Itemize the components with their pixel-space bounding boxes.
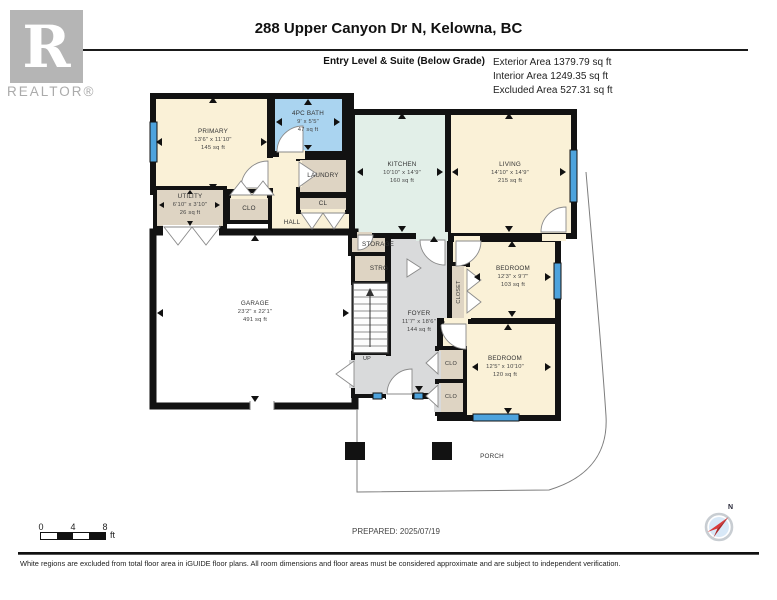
scale-bar: 0 4 8 bbox=[40, 532, 106, 540]
room-label-porch: PORCH bbox=[480, 453, 504, 461]
page-title: 288 Upper Canyon Dr N, Kelowna, BC bbox=[0, 20, 777, 37]
window bbox=[554, 263, 561, 299]
room-label-bedroom1: BEDROOM12'3" x 9'7"103 sq ft bbox=[496, 265, 530, 289]
footer-rule bbox=[18, 552, 759, 555]
room-label-living: LIVING14'10" x 14'9"215 sq ft bbox=[491, 161, 529, 185]
header-rule bbox=[28, 49, 748, 51]
scale-segment bbox=[57, 533, 73, 539]
prepared-date: PREPARED: 2025/07/19 bbox=[352, 527, 440, 536]
window bbox=[570, 150, 577, 202]
staircase bbox=[353, 283, 388, 353]
entry-sidelight bbox=[414, 393, 423, 399]
window bbox=[150, 122, 157, 162]
scale-tick-8: 8 bbox=[102, 522, 107, 532]
room-label-garage: GARAGE23'2" x 22'1"491 sq ft bbox=[238, 300, 272, 324]
scale-segment bbox=[89, 533, 105, 539]
room-label-hall: HALL bbox=[284, 219, 301, 227]
interior-area: Interior Area 1249.35 sq ft bbox=[493, 70, 613, 84]
scale-segment bbox=[73, 533, 89, 539]
scale-tick-0: 0 bbox=[38, 522, 43, 532]
level-label: Entry Level & Suite (Below Grade) bbox=[250, 56, 485, 67]
post bbox=[345, 442, 365, 460]
scale-segment bbox=[41, 533, 57, 539]
room-label-laundry: LAUNDRY bbox=[307, 172, 338, 180]
disclaimer-text: White regions are excluded from total fl… bbox=[20, 559, 765, 568]
scale-tick-4: 4 bbox=[70, 522, 75, 532]
room-label-clo-a: CLO bbox=[445, 360, 457, 368]
exterior-area: Exterior Area 1379.79 sq ft bbox=[493, 56, 613, 70]
porch-posts bbox=[345, 442, 452, 460]
compass-icon bbox=[706, 514, 732, 540]
room-label-cl: CL bbox=[319, 200, 327, 208]
room-label-foyer: FOYER11'7" x 18'6"144 sq ft bbox=[402, 310, 436, 334]
room-label-primary: PRIMARY13'6" x 11'10"145 sq ft bbox=[194, 128, 231, 152]
area-summary: Exterior Area 1379.79 sq ft Interior Are… bbox=[493, 56, 613, 98]
stairs-up-label: UP bbox=[363, 355, 371, 363]
room-label-storage: STORAGE bbox=[362, 241, 394, 249]
room-label-strg: STRG bbox=[370, 265, 388, 273]
room-label-bedroom2: BEDROOM12'5" x 10'10"120 sq ft bbox=[486, 355, 524, 379]
excluded-area: Excluded Area 527.31 sq ft bbox=[493, 84, 613, 98]
realtor-wordmark: REALTOR® bbox=[7, 84, 87, 99]
room-label-closet: CLOSET bbox=[455, 280, 463, 303]
floorplan-svg bbox=[0, 0, 777, 600]
entry-sidelight bbox=[373, 393, 382, 399]
window bbox=[473, 414, 519, 421]
room-label-clo-b: CLO bbox=[445, 393, 457, 401]
room-label-utility: UTILITY6'10" x 3'10"26 sq ft bbox=[173, 193, 207, 217]
room-label-bath: 4PC BATH9' x 5'5"47 sq ft bbox=[292, 110, 324, 134]
room-label-clo-primary: CLO bbox=[242, 205, 256, 213]
scale-unit: ft bbox=[110, 530, 115, 540]
room-label-kitchen: KITCHEN10'10" x 14'9"160 sq ft bbox=[383, 161, 421, 185]
floorplan-page: R REALTOR® 288 Upper Canyon Dr N, Kelown… bbox=[0, 0, 777, 600]
compass-north-label: N bbox=[728, 504, 733, 511]
post bbox=[432, 442, 452, 460]
